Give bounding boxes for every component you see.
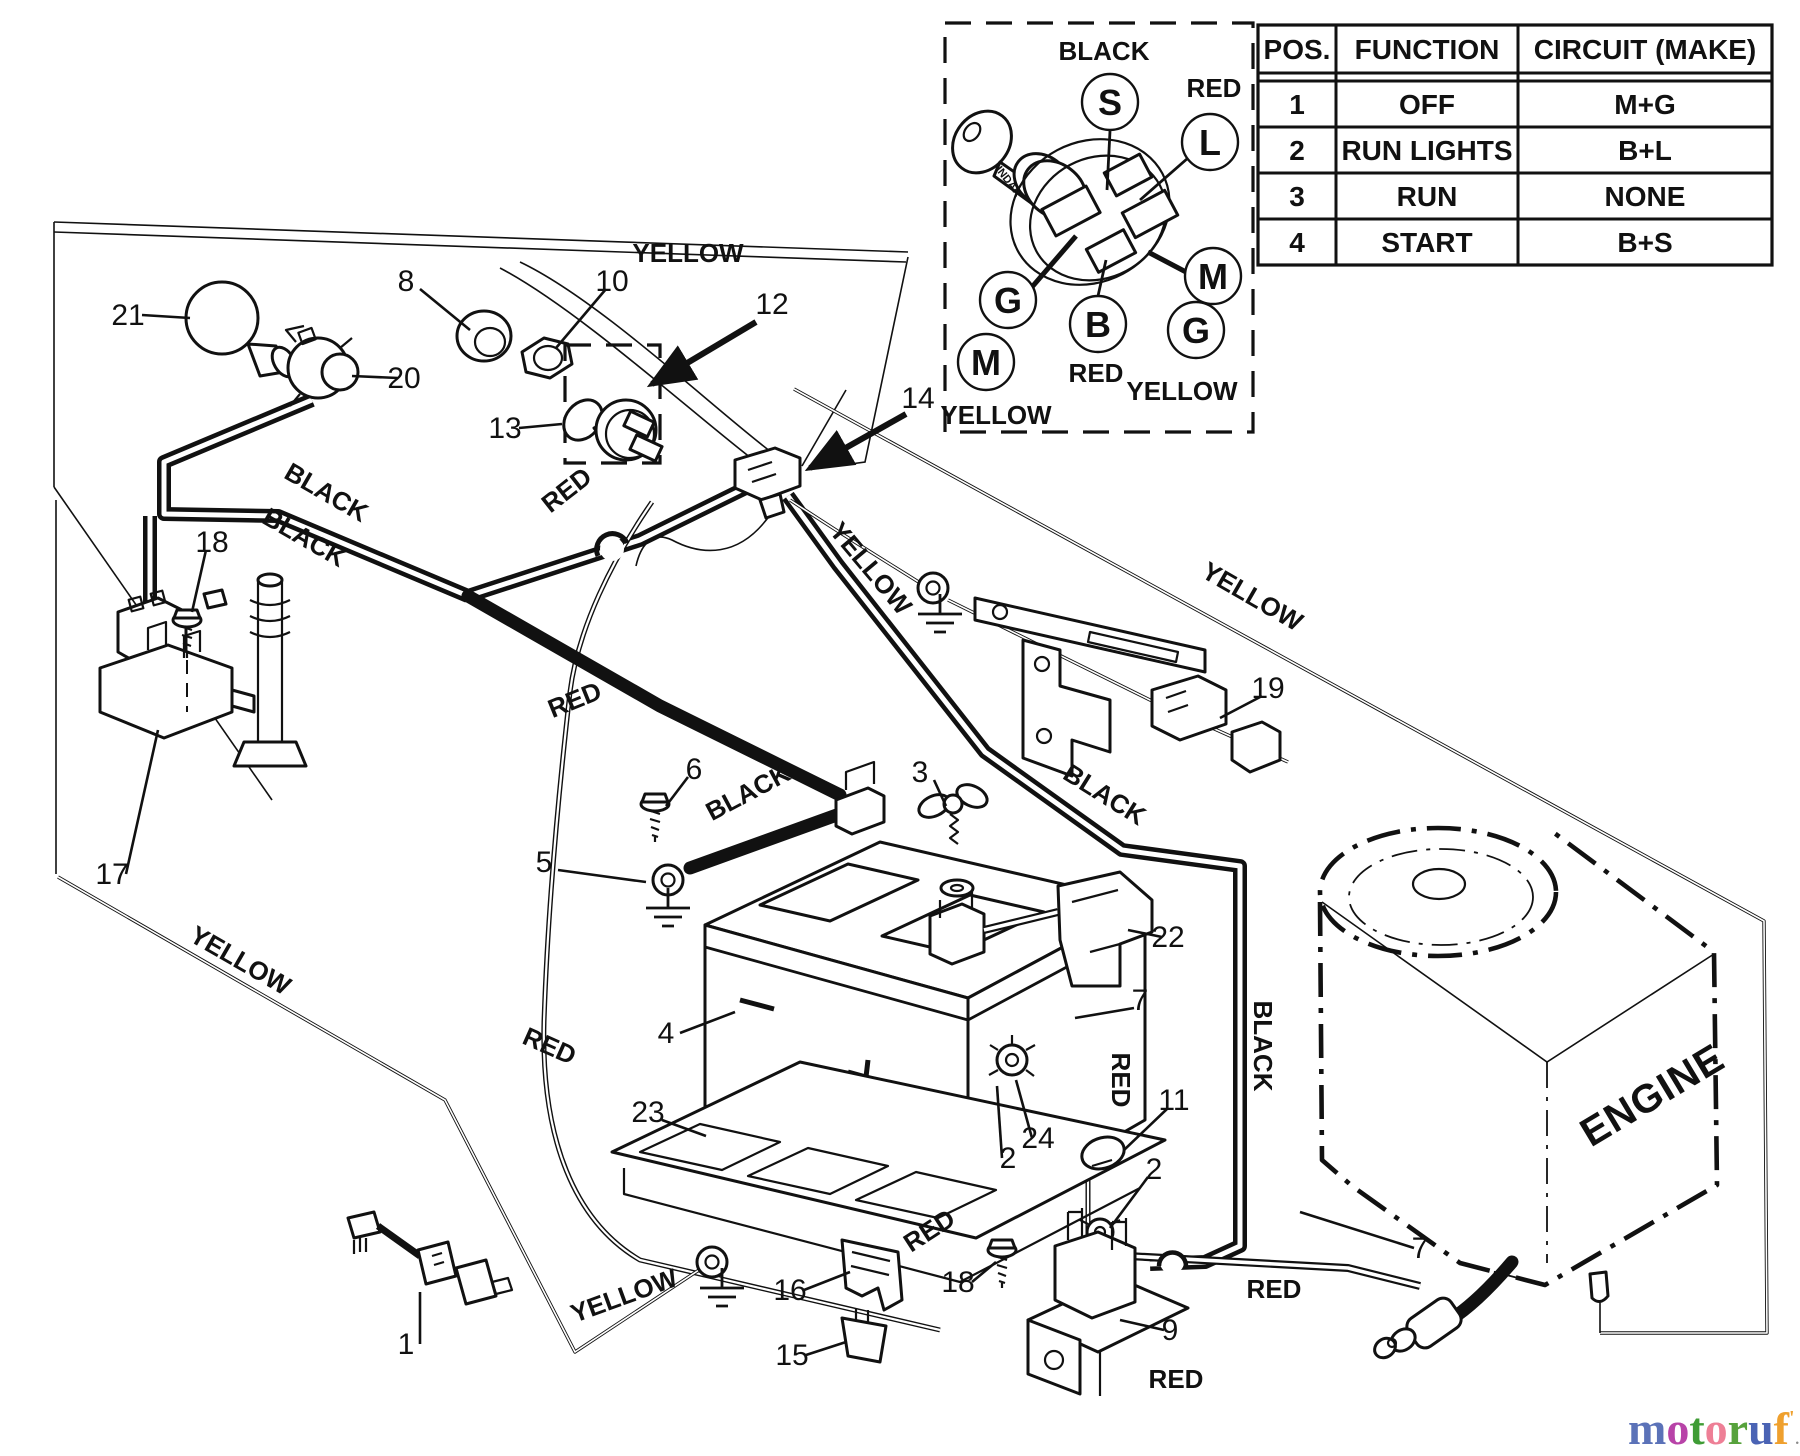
part-number-24-19: 24 xyxy=(1021,1122,1054,1155)
leader-line xyxy=(142,315,190,318)
terminal-letter-S: S xyxy=(1098,82,1122,123)
engine: ENGINE xyxy=(1320,828,1732,1362)
terminal-letter-B: B xyxy=(1085,304,1111,345)
leader-line xyxy=(558,870,646,882)
logo-suffix: .de xyxy=(1795,1425,1800,1449)
table-cell: RUN LIGHTS xyxy=(1341,135,1512,166)
wire-color-label: BLACK xyxy=(701,757,796,826)
part-number-7-16: 7 xyxy=(1132,984,1149,1017)
table-header-0: POS. xyxy=(1264,34,1331,65)
part-number-5-11: 5 xyxy=(536,846,553,879)
interlock-switch-assembly xyxy=(100,574,306,766)
leader-line xyxy=(192,550,206,612)
table-cell: START xyxy=(1381,227,1472,258)
leader-line xyxy=(126,730,158,874)
logo-letter: u xyxy=(1748,1403,1774,1454)
leader-line xyxy=(804,1272,850,1290)
lamp-socket xyxy=(286,326,358,406)
inset-wire-color-label: RED xyxy=(1187,73,1242,103)
part-number-19-9: 19 xyxy=(1251,672,1284,705)
part-number-3-12: 3 xyxy=(912,756,929,789)
wire-color-label: RED xyxy=(1149,1364,1204,1394)
wiring-diagram-page: ENGINE INDAK xyxy=(0,0,1800,1456)
part-number-11-17: 11 xyxy=(1158,1084,1189,1117)
table-cell: RUN xyxy=(1397,181,1458,212)
table-header-1: FUNCTION xyxy=(1355,34,1500,65)
part-number-1-21: 1 xyxy=(398,1328,415,1361)
part-number-2-18: 2 xyxy=(1146,1153,1163,1186)
part-number-10-3: 10 xyxy=(595,265,628,298)
terminal-letter-G: G xyxy=(1182,310,1210,351)
part-number-17-8: 17 xyxy=(95,858,128,891)
motoruf-logo: motoruf'.de xyxy=(1628,1403,1800,1454)
part-number-20-2: 20 xyxy=(387,362,420,395)
inset-wire-color-label: RED xyxy=(1069,358,1124,388)
table-cell: 2 xyxy=(1289,135,1305,166)
part-number-21-0: 21 xyxy=(111,299,144,332)
headlamp-bulb xyxy=(186,282,301,381)
inset-wire-color-label: BLACK xyxy=(1059,36,1150,66)
leader-line xyxy=(806,1342,846,1355)
part-number-9-25: 9 xyxy=(1162,1314,1179,1347)
terminal-letter-G: G xyxy=(994,280,1022,321)
keyswitch-bezel-ring xyxy=(457,311,511,361)
leader-line xyxy=(420,289,470,330)
wire-color-label: RED xyxy=(518,1021,580,1071)
part-number-14-6: 14 xyxy=(901,382,934,415)
part-number-8-1: 8 xyxy=(398,265,415,298)
part-number-23-14: 23 xyxy=(631,1096,664,1129)
inset-wire-color-label: YELLOW xyxy=(940,400,1052,430)
engine-label: ENGINE xyxy=(1573,1036,1732,1156)
part-number-12-5: 12 xyxy=(755,288,788,321)
table-cell: 1 xyxy=(1289,89,1305,120)
ignition-switch-inset: INDAK SLMGBGM BLACKREDREDYELLOWYELLOW xyxy=(940,23,1253,432)
leader-line xyxy=(519,424,562,428)
terminal-letter-L: L xyxy=(1199,122,1221,163)
terminal-letter-M: M xyxy=(971,342,1001,383)
table-cell: M+G xyxy=(1614,89,1675,120)
part-number-7-26: 7 xyxy=(1412,1232,1429,1265)
table-cell: OFF xyxy=(1399,89,1455,120)
wire-color-label: RED xyxy=(536,461,598,518)
part-number-4-13: 4 xyxy=(658,1017,675,1050)
wiring-diagram: ENGINE INDAK xyxy=(0,0,1800,1456)
leader-line xyxy=(1110,1177,1148,1228)
terminal-letter-M: M xyxy=(1198,256,1228,297)
jumper-connector-1 xyxy=(348,1212,512,1304)
part-number-16-22: 16 xyxy=(773,1274,806,1307)
ground-screw xyxy=(641,794,669,842)
logo-letter: o xyxy=(1705,1403,1728,1454)
part-number-15-23: 15 xyxy=(775,1339,808,1372)
table-cell: 3 xyxy=(1289,181,1305,212)
part-number-6-10: 6 xyxy=(686,753,703,786)
logo-letter: r xyxy=(1728,1403,1748,1454)
table-cell: NONE xyxy=(1605,181,1686,212)
part-number-2-20: 2 xyxy=(1000,1142,1017,1175)
part-number-18-24: 18 xyxy=(941,1266,974,1299)
logo-letter: o xyxy=(1666,1403,1689,1454)
logo-letter: t xyxy=(1689,1403,1705,1454)
cover-clip-16 xyxy=(842,1240,902,1310)
table-cell: 4 xyxy=(1289,227,1305,258)
table-cell: B+L xyxy=(1618,135,1672,166)
leader-line xyxy=(972,1262,996,1282)
part-number-22-15: 22 xyxy=(1151,921,1184,954)
switch-function-table: POS.FUNCTIONCIRCUIT (MAKE)1OFFM+G2RUN LI… xyxy=(1258,25,1772,265)
inset-wire-color-label: YELLOW xyxy=(1126,376,1238,406)
logo-letter: m xyxy=(1628,1403,1666,1454)
wire-color-label: YELLOW xyxy=(1197,555,1309,637)
wire-color-label: RED xyxy=(544,675,606,723)
wire-color-label: BLACK xyxy=(1248,1001,1278,1092)
wire-color-label: RED xyxy=(1106,1053,1136,1108)
table-header-2: CIRCUIT (MAKE) xyxy=(1534,34,1756,65)
table-cell: B+S xyxy=(1617,227,1672,258)
part-number-13-4: 13 xyxy=(488,412,521,445)
wire-color-label: RED xyxy=(1247,1274,1302,1304)
logo-letter: f xyxy=(1774,1403,1790,1454)
part-number-18-7: 18 xyxy=(195,526,228,559)
wire-color-label: YELLOW xyxy=(632,238,744,268)
